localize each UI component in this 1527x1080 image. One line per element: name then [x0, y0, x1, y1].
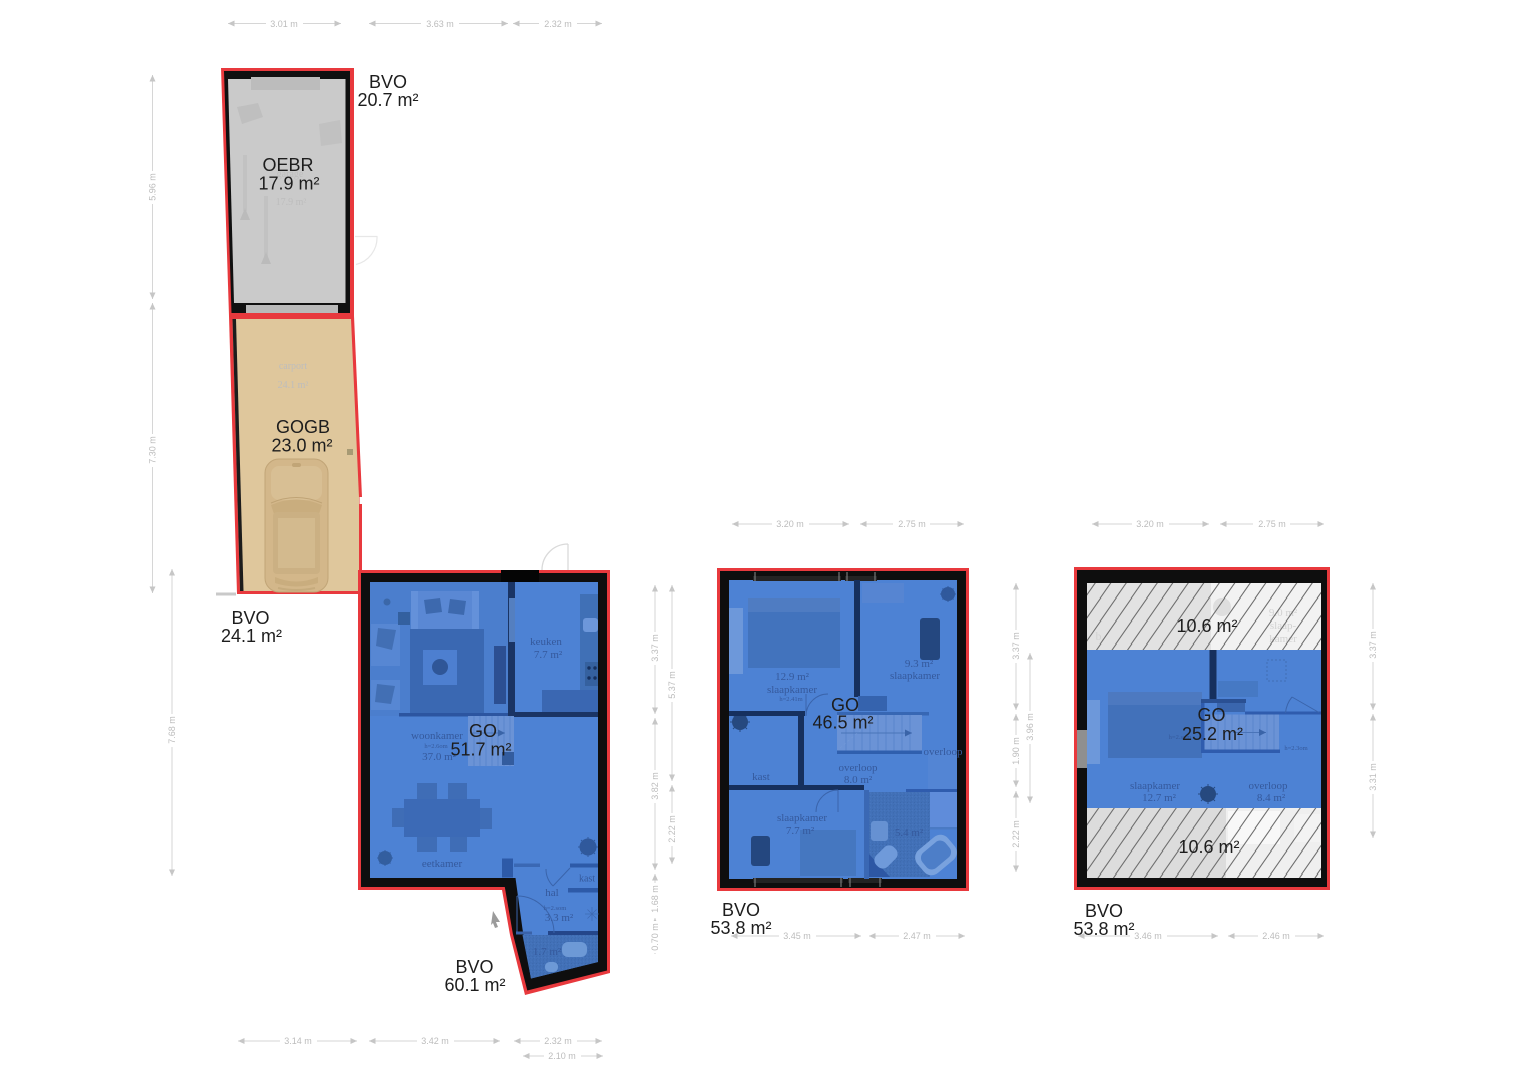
svg-text:GOGB: GOGB — [276, 417, 330, 437]
svg-text:3.20 m: 3.20 m — [776, 519, 804, 529]
svg-text:3.3 m²: 3.3 m² — [545, 912, 574, 924]
svg-text:kast: kast — [579, 874, 595, 885]
svg-text:17.9 m²: 17.9 m² — [276, 197, 307, 208]
svg-text:2.46 m: 2.46 m — [1262, 931, 1290, 941]
svg-text:slaapkamer: slaapkamer — [1130, 780, 1180, 792]
svg-text:overloop: overloop — [838, 762, 878, 774]
svg-text:3.14 m: 3.14 m — [284, 1036, 312, 1046]
svg-text:BVO: BVO — [455, 957, 493, 977]
svg-text:3.45 m: 3.45 m — [783, 931, 811, 941]
svg-text:slaapkamer: slaapkamer — [890, 670, 940, 682]
svg-text:5.4 m²: 5.4 m² — [895, 827, 924, 839]
svg-text:24.1 m²: 24.1 m² — [278, 380, 309, 391]
svg-text:overloop: overloop — [1248, 780, 1288, 792]
svg-text:5.37 m: 5.37 m — [667, 671, 677, 699]
svg-text:eetkamer: eetkamer — [422, 858, 463, 870]
svg-text:46.5 m²: 46.5 m² — [812, 713, 873, 733]
svg-text:0.70 m: 0.70 m — [650, 923, 660, 951]
svg-text:23.0 m²: 23.0 m² — [271, 436, 332, 456]
svg-text:2.22 m: 2.22 m — [1011, 820, 1021, 848]
svg-text:h=2.6om: h=2.6om — [424, 743, 447, 750]
svg-text:BVO: BVO — [369, 72, 407, 92]
svg-text:12.9 m²: 12.9 m² — [775, 671, 810, 683]
svg-text:5.96 m: 5.96 m — [148, 173, 158, 201]
svg-text:OEBR: OEBR — [262, 155, 313, 175]
svg-text:carport: carport — [279, 361, 308, 372]
svg-text:3.01 m: 3.01 m — [270, 19, 298, 29]
svg-text:3.37 m: 3.37 m — [1011, 632, 1021, 660]
svg-text:3.96 m: 3.96 m — [1025, 713, 1035, 741]
svg-text:BVO: BVO — [722, 900, 760, 920]
svg-text:10.6 m²: 10.6 m² — [1178, 837, 1239, 857]
svg-text:20.7 m²: 20.7 m² — [357, 90, 418, 110]
svg-text:25.2 m²: 25.2 m² — [1182, 724, 1243, 744]
svg-text:kast: kast — [752, 771, 770, 783]
svg-text:2.75 m: 2.75 m — [1258, 519, 1286, 529]
svg-text:2.47 m: 2.47 m — [903, 931, 931, 941]
svg-text:8.0 m²: 8.0 m² — [844, 774, 873, 786]
svg-text:2.10 m: 2.10 m — [548, 1051, 576, 1061]
svg-text:h=2.som: h=2.som — [544, 905, 567, 912]
svg-text:slaapkamer: slaapkamer — [777, 812, 827, 824]
svg-text:7.7 m²: 7.7 m² — [786, 825, 815, 837]
svg-text:2.75 m: 2.75 m — [898, 519, 926, 529]
svg-text:60.1 m²: 60.1 m² — [444, 975, 505, 995]
svg-text:BVO: BVO — [1085, 901, 1123, 921]
svg-text:slaapkamer: slaapkamer — [767, 684, 817, 696]
svg-text:3.20 m: 3.20 m — [1136, 519, 1164, 529]
svg-text:h=2.3om: h=2.3om — [1284, 745, 1307, 752]
svg-text:BVO: BVO — [231, 608, 269, 628]
svg-text:7.68 m: 7.68 m — [167, 716, 177, 744]
svg-text:1.68 m: 1.68 m — [650, 885, 660, 913]
svg-text:3.42 m: 3.42 m — [421, 1036, 449, 1046]
svg-text:17.9 m²: 17.9 m² — [258, 174, 319, 194]
svg-text:3.82 m: 3.82 m — [650, 772, 660, 800]
svg-text:8.4 m²: 8.4 m² — [1257, 792, 1286, 804]
svg-text:51.7 m²: 51.7 m² — [450, 740, 511, 760]
svg-text:3.31 m: 3.31 m — [1368, 763, 1378, 791]
svg-text:12.7 m²: 12.7 m² — [1142, 792, 1177, 804]
svg-text:2.22 m: 2.22 m — [667, 815, 677, 843]
svg-text:overloop: overloop — [923, 746, 963, 758]
svg-text:24.1 m²: 24.1 m² — [221, 626, 282, 646]
svg-text:h=2.41m: h=2.41m — [779, 696, 802, 703]
svg-text:3.37 m: 3.37 m — [650, 634, 660, 662]
svg-text:3.37 m: 3.37 m — [1368, 631, 1378, 659]
svg-text:2.32 m: 2.32 m — [544, 1036, 572, 1046]
svg-text:3.63 m: 3.63 m — [426, 19, 454, 29]
svg-text:7.30 m: 7.30 m — [148, 436, 158, 464]
svg-text:9.3 m²: 9.3 m² — [905, 658, 934, 670]
svg-text:hal: hal — [545, 887, 558, 899]
svg-text:keuken: keuken — [530, 636, 562, 648]
svg-text:1.7 m²: 1.7 m² — [533, 946, 562, 958]
svg-text:GO: GO — [469, 721, 497, 741]
svg-text:10.6 m²: 10.6 m² — [1176, 616, 1237, 636]
svg-text:1.90 m: 1.90 m — [1011, 737, 1021, 765]
svg-text:3.46 m: 3.46 m — [1134, 931, 1162, 941]
svg-text:7.7 m²: 7.7 m² — [534, 649, 563, 661]
svg-text:53.8 m²: 53.8 m² — [710, 918, 771, 938]
svg-text:2.32 m: 2.32 m — [544, 19, 572, 29]
svg-text:GO: GO — [1197, 705, 1225, 725]
